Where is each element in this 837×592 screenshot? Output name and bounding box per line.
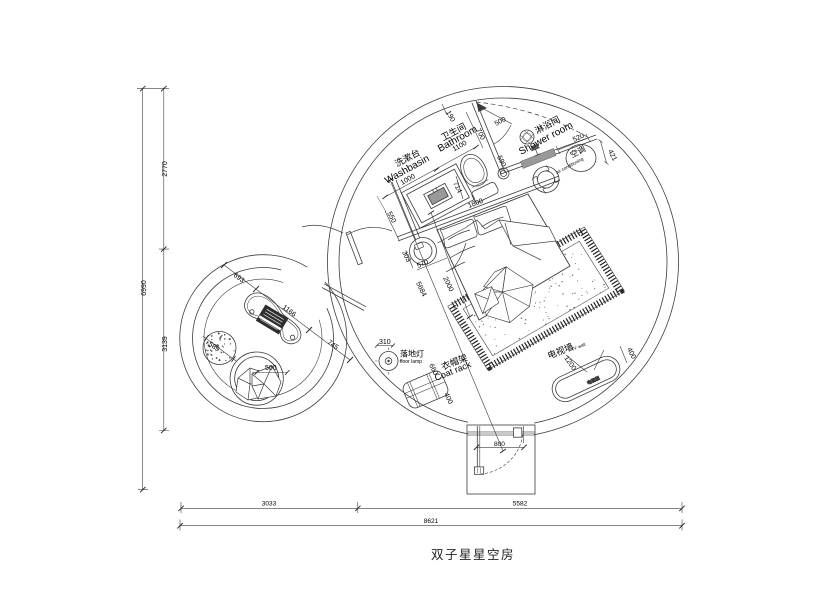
svg-text:589: 589 <box>207 341 221 353</box>
svg-text:2000: 2000 <box>441 276 454 293</box>
svg-text:air conditioning: air conditioning <box>555 156 585 175</box>
svg-text:400: 400 <box>625 347 637 361</box>
svg-text:500: 500 <box>265 365 277 372</box>
svg-text:floor lamp: floor lamp <box>400 359 422 365</box>
svg-text:5684: 5684 <box>414 281 427 298</box>
svg-text:421: 421 <box>606 149 618 163</box>
svg-text:2770: 2770 <box>162 161 169 177</box>
svg-text:550: 550 <box>385 211 397 225</box>
svg-text:1800: 1800 <box>467 198 484 210</box>
svg-text:500: 500 <box>494 116 508 128</box>
svg-text:落地灯: 落地灯 <box>400 349 424 359</box>
svg-text:3033: 3033 <box>262 501 277 508</box>
svg-text:310: 310 <box>379 339 391 346</box>
svg-text:6990: 6990 <box>141 280 148 296</box>
svg-text:190: 190 <box>444 110 456 124</box>
svg-text:400: 400 <box>442 392 453 406</box>
svg-text:双子星星空房: 双子星星空房 <box>431 547 515 562</box>
svg-text:590: 590 <box>495 155 507 169</box>
svg-text:520: 520 <box>572 132 586 143</box>
svg-text:693: 693 <box>232 272 246 285</box>
svg-text:3139: 3139 <box>162 336 169 352</box>
svg-text:800: 800 <box>494 441 505 448</box>
svg-text:8621: 8621 <box>424 518 439 525</box>
svg-text:电视柜: 电视柜 <box>586 374 602 386</box>
svg-text:5582: 5582 <box>513 501 528 508</box>
svg-text:TV wall: TV wall <box>571 342 587 352</box>
